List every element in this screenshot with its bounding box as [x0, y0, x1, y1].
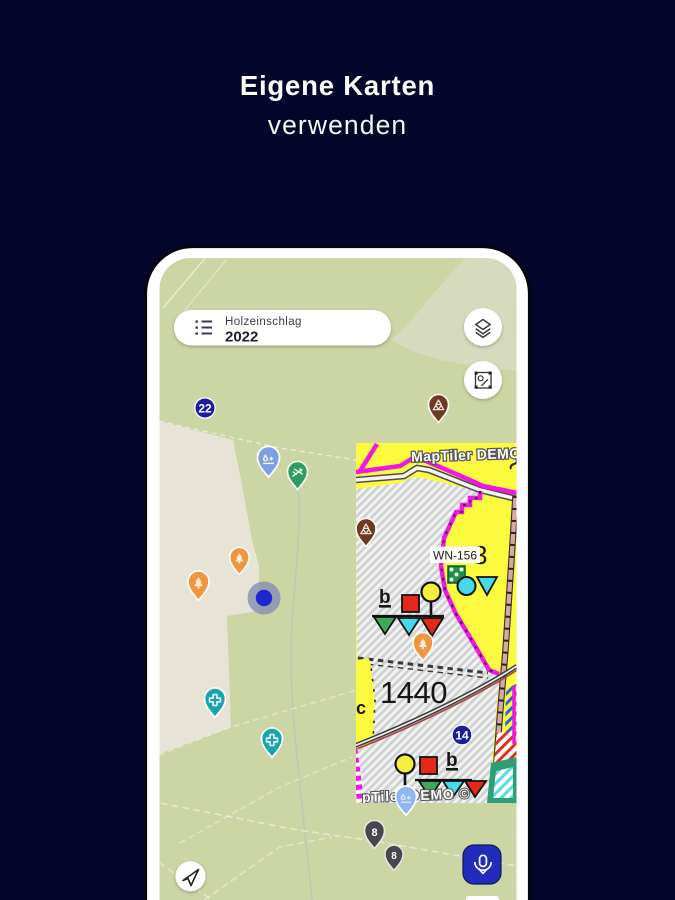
svg-text:22: 22	[198, 402, 212, 416]
svg-text:14: 14	[455, 729, 469, 743]
svg-text:1440: 1440	[380, 675, 447, 710]
svg-text:c: c	[356, 698, 366, 718]
svg-text:Holzeinschlag: Holzeinschlag	[225, 316, 302, 328]
svg-text:WN-156: WN-156	[433, 549, 477, 563]
svg-text:8: 8	[391, 851, 397, 862]
svg-text:b: b	[446, 750, 458, 771]
svg-text:b: b	[379, 587, 391, 608]
svg-text:8: 8	[371, 827, 377, 839]
svg-text:2022: 2022	[225, 329, 258, 346]
